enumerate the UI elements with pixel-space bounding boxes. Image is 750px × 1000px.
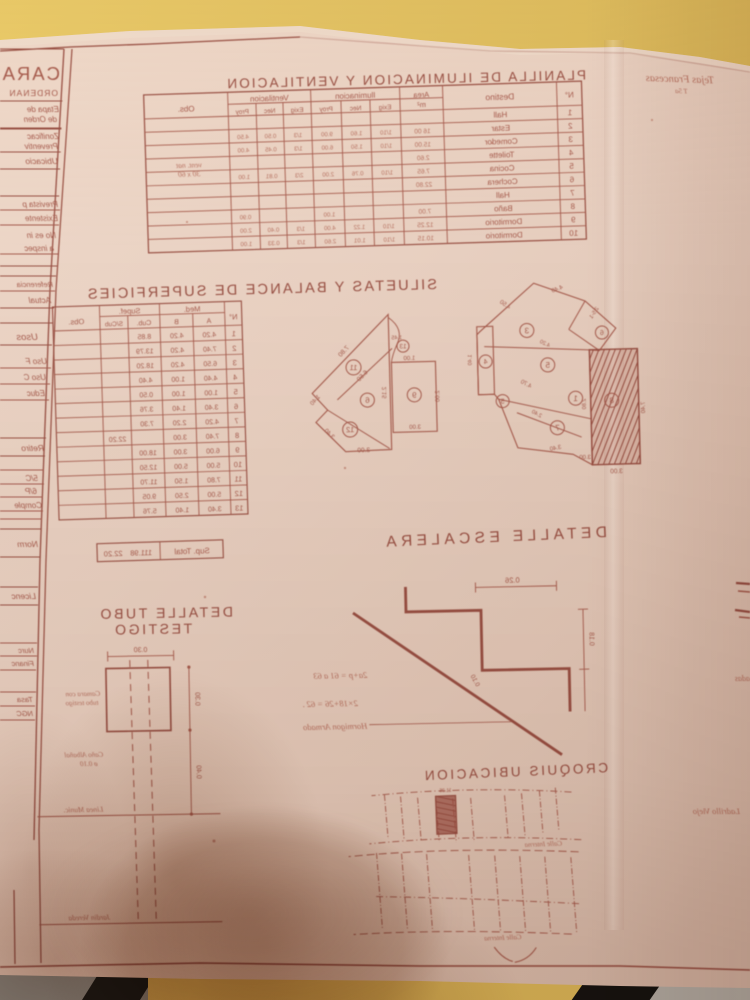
svg-text:2.00: 2.00 [239,228,252,234]
svg-text:2.50: 2.50 [175,493,189,500]
svg-text:Referencia: Referencia [17,280,53,289]
svg-text:1/3: 1/3 [296,240,305,246]
svg-text:3: 3 [233,358,237,367]
svg-text:9.05: 9.05 [142,494,156,501]
svg-text:0.10: 0.10 [468,673,480,688]
svg-text:4.20: 4.20 [539,339,551,349]
svg-text:11: 11 [234,474,242,483]
svg-text:Nec: Nec [349,105,362,112]
svg-text:7: 7 [234,416,238,425]
svg-text:2.15: 2.15 [382,387,388,399]
svg-text:Med.: Med. [184,304,201,314]
svg-text:4: 4 [568,148,573,157]
svg-text:3.40: 3.40 [549,445,562,453]
svg-text:2.00: 2.00 [322,172,335,178]
svg-text:6: 6 [365,396,370,405]
svg-text:1.40: 1.40 [172,405,186,412]
svg-text:1.00: 1.00 [323,212,336,218]
svg-text:4.70: 4.70 [519,379,533,390]
svg-text:0.26: 0.26 [505,576,520,585]
svg-text:3.00: 3.00 [610,468,623,475]
svg-text:Dormitorio: Dormitorio [485,230,523,240]
svg-text:Tejas Francesas: Tejas Francesas [646,73,715,86]
svg-text:Proy: Proy [319,106,333,113]
svg-text:B: B [174,319,179,326]
svg-text:6: 6 [600,330,604,337]
svg-text:7.30: 7.30 [140,421,154,428]
svg-text:1/10: 1/10 [379,130,392,136]
svg-text:DETALLE TUBO: DETALLE TUBO [98,604,233,622]
svg-text:1.00: 1.00 [240,242,253,248]
svg-text:2×18+26 = 62 .: 2×18+26 = 62 . [302,698,358,709]
svg-text:4.20: 4.20 [170,333,184,340]
svg-text:Exig: Exig [290,107,303,114]
svg-text:3: 3 [524,326,529,335]
svg-text:4.20: 4.20 [170,347,184,354]
svg-text:4: 4 [233,373,237,382]
svg-text:1/10: 1/10 [381,170,394,176]
svg-text:2.60: 2.60 [324,239,337,245]
svg-text:2.80: 2.80 [582,399,588,410]
svg-text:7.65: 7.65 [417,168,430,175]
svg-text:0.30: 0.30 [134,647,148,654]
svg-text:2.00: 2.00 [435,390,441,402]
svg-text:Actual: Actual [29,296,52,305]
svg-text:1.40: 1.40 [467,355,473,366]
svg-text:1.00: 1.00 [204,390,218,397]
svg-text:1/10: 1/10 [382,224,395,230]
svg-text:2.60: 2.60 [416,155,429,162]
svg-text:111.98: 111.98 [130,548,152,558]
svg-text:3.00: 3.00 [409,425,421,431]
svg-text:8: 8 [570,202,575,211]
svg-text:22.20: 22.20 [109,436,127,444]
svg-text:N°: N° [565,90,574,99]
svg-text:12.50: 12.50 [140,465,158,473]
svg-text:tubo testigo: tubo testigo [65,699,98,708]
svg-text:16 00: 16 00 [414,128,431,136]
svg-text:11.70: 11.70 [140,479,157,487]
svg-text:1/3: 1/3 [293,133,302,139]
svg-text:1.50: 1.50 [350,145,363,151]
svg-text:0.81: 0.81 [265,174,278,180]
svg-text:6: 6 [569,175,574,184]
svg-text:Educ: Educ [27,389,45,398]
svg-text:15.00: 15.00 [414,141,431,149]
svg-text:6.00: 6.00 [206,448,220,455]
svg-text:13: 13 [399,343,407,350]
svg-text:0.50: 0.50 [139,392,153,399]
svg-text:Sup. Total: Sup. Total [174,546,210,556]
svg-text:0.90: 0.90 [239,215,252,221]
svg-text:1.50: 1.50 [174,478,188,485]
svg-text:ORDENAN: ORDENAN [8,88,58,98]
svg-text:Dormitorio: Dormitorio [485,217,523,227]
svg-text:8.85: 8.85 [137,334,151,341]
svg-text:1/3: 1/3 [293,146,302,152]
svg-text:Uso F: Uso F [25,357,47,366]
svg-text:4.00: 4.00 [237,148,250,154]
svg-text:PLANILLA DE ILUMINACION Y: PLANILLA DE ILUMINACION Y VENTILACION [225,67,586,91]
svg-text:CARAC: CARAC [0,63,60,84]
svg-text:1: 1 [573,394,578,403]
svg-text:7.40: 7.40 [206,434,220,441]
svg-text:Preventiv: Preventiv [24,142,58,151]
svg-text:0.33: 0.33 [267,241,280,247]
svg-text:3.00: 3.00 [173,435,187,442]
svg-text:4.20: 4.20 [171,362,185,369]
svg-text:22.20: 22.20 [104,549,123,559]
svg-text:Comedor: Comedor [484,137,518,147]
svg-text:0.45: 0.45 [264,147,277,153]
svg-text:10: 10 [234,460,243,469]
svg-text:11: 11 [350,363,358,372]
svg-text:7.80: 7.80 [207,477,221,484]
svg-text:Comple: Comple [14,501,42,510]
svg-text:2: 2 [567,122,572,131]
svg-text:5.00: 5.00 [174,464,188,471]
svg-text:Area: Area [412,90,429,100]
svg-text:1.22: 1.22 [353,225,366,231]
svg-text:10.15: 10.15 [417,235,434,243]
svg-text:Hall: Hall [493,110,507,119]
svg-text:S/Cub: S/Cub [104,321,123,329]
svg-text:Retiro: Retiro [21,443,44,453]
svg-text:Cocina: Cocina [489,164,515,174]
svg-text:1: 1 [567,108,572,117]
svg-text:1/10: 1/10 [383,237,396,243]
svg-text:Iluminacion: Iluminacion [335,91,376,101]
svg-text:m²: m² [417,100,427,109]
svg-text:Ladrillo Viejo: Ladrillo Viejo [693,806,741,816]
svg-text:5: 5 [233,387,237,396]
svg-text:12.25: 12.25 [417,222,434,230]
svg-text:1.00: 1.00 [171,376,185,383]
svg-text:9.00: 9.00 [320,132,333,138]
svg-text:9: 9 [235,445,239,454]
svg-text:NGC: NGC [16,709,33,718]
svg-text:Ubicacio: Ubicacio [25,156,58,166]
svg-text:Financ: Financ [11,659,34,668]
svg-text:DETALLE ESCALERA: DETALLE ESCALERA [382,524,608,551]
svg-text:7: 7 [555,423,560,432]
svg-text:4.00: 4.00 [323,226,336,232]
svg-text:1.60: 1.60 [350,131,363,137]
svg-text:Cub.: Cub. [136,320,151,327]
svg-text:4.20: 4.20 [205,419,219,426]
svg-text:Hormigon Armado: Hormigon Armado [303,721,369,732]
svg-text:5.00: 5.00 [206,463,220,470]
svg-text:2a+p = 61 a 63: 2a+p = 61 a 63 [313,670,367,681]
svg-text:4.50: 4.50 [236,135,249,141]
svg-text:No es in: No es in [26,231,56,240]
svg-text:0.30: 0.30 [193,692,200,706]
svg-text:18.00: 18.00 [139,450,157,458]
svg-text:2.20: 2.20 [173,420,187,427]
svg-text:1.40: 1.40 [309,394,322,407]
svg-text:Exig: Exig [378,104,391,111]
svg-text:0.40: 0.40 [267,228,280,234]
svg-text:Toilette: Toilette [488,150,514,160]
svg-text:1.00: 1.00 [172,391,186,398]
svg-text:5: 5 [545,361,550,370]
svg-text:Existente: Existente [25,214,58,223]
svg-text:3.40: 3.40 [205,404,219,411]
svg-text:3.76: 3.76 [140,406,154,413]
svg-text:7.00: 7.00 [418,208,431,215]
svg-text:5: 5 [501,399,505,406]
svg-text:6.00: 6.00 [321,145,334,151]
svg-text:9: 9 [570,215,575,224]
svg-text:Estar: Estar [491,123,510,133]
svg-text:TESTIGO: TESTIGO [112,620,192,637]
svg-text:Nurc: Nurc [18,646,34,655]
svg-text:18.20: 18.20 [136,363,154,371]
svg-text:6: 6 [234,402,238,411]
svg-text:0.18: 0.18 [587,632,594,646]
svg-text:5/C: 5/C [25,474,38,483]
svg-text:Licenc: Licenc [11,591,36,601]
svg-text:T 5a: T 5a [674,87,687,95]
svg-text:3.40: 3.40 [322,428,335,441]
svg-text:7.80: 7.80 [337,345,351,359]
svg-text:A: A [206,318,211,325]
svg-text:1.40: 1.40 [175,507,189,514]
svg-text:8: 8 [235,431,239,440]
svg-text:Uso C: Uso C [24,373,46,382]
svg-text:10: 10 [569,229,579,238]
svg-text:4.40: 4.40 [204,375,218,382]
svg-text:adas: adas [735,674,750,683]
svg-text:Supef.: Supef. [119,306,141,316]
svg-text:5: 5 [569,162,574,171]
svg-text:6/P: 6/P [24,487,37,496]
svg-text:Hall: Hall [496,191,510,200]
svg-text:30 x 60: 30 x 60 [178,169,202,179]
svg-text:0.76: 0.76 [351,171,364,177]
svg-text:Etapa de: Etapa de [26,105,59,114]
svg-text:Calle Interna: Calle Interna [524,839,562,848]
svg-text:de Orden: de Orden [23,115,57,124]
svg-text:Zonificac: Zonificac [27,132,60,141]
svg-text:7.40: 7.40 [641,402,647,414]
svg-text:13: 13 [235,503,244,512]
svg-text:5.76: 5.76 [143,508,157,515]
svg-text:3: 3 [568,135,573,144]
svg-text:1.01: 1.01 [353,238,366,244]
svg-text:Destino: Destino [485,91,514,102]
svg-text:Obs.: Obs. [178,104,195,114]
svg-text:4: 4 [484,359,488,366]
svg-text:12: 12 [346,425,355,434]
svg-text:Obs.: Obs. [68,317,84,326]
svg-text:3.00: 3.00 [174,449,188,456]
svg-text:N°: N° [229,312,238,321]
svg-text:8: 8 [609,396,614,405]
svg-text:1/3: 1/3 [296,227,305,233]
svg-text:6.50: 6.50 [203,361,217,368]
svg-text:0.50: 0.50 [264,134,277,140]
svg-text:2/3: 2/3 [294,173,303,179]
svg-text:3.00: 3.00 [579,455,591,461]
svg-text:3.40: 3.40 [208,506,222,513]
svg-text:Cochera: Cochera [487,177,518,187]
svg-text:Ventilacion: Ventilacion [250,93,289,103]
svg-text:5.00: 5.00 [207,492,221,499]
svg-text:1/10: 1/10 [380,144,393,150]
svg-text:1: 1 [232,329,236,338]
svg-text:Camara con: Camara con [65,690,100,699]
svg-text:Tasa: Tasa [17,695,33,704]
svg-text:22.80: 22.80 [415,182,432,190]
svg-text:a inspec: a inspec [24,244,54,253]
svg-text:1.00: 1.00 [238,175,251,181]
svg-text:Proy: Proy [235,109,249,116]
svg-text:Prevista p: Prevista p [22,200,58,209]
svg-text:Nec: Nec [263,108,276,115]
svg-text:1.45: 1.45 [391,335,402,341]
svg-text:4.40: 4.40 [139,377,153,384]
svg-text:1.00: 1.00 [403,356,415,362]
svg-text:3.00: 3.00 [357,447,370,454]
svg-text:2: 2 [232,344,236,353]
svg-text:Usos: Usos [16,332,38,343]
svg-text:7: 7 [570,188,575,197]
svg-text:7.40: 7.40 [203,346,217,353]
svg-text:9: 9 [411,391,416,400]
svg-text:13.79: 13.79 [136,348,154,356]
svg-text:SILUETAS Y BALANCE DE SUPE: SILUETAS Y BALANCE DE SUPERFICIES [85,277,437,303]
svg-text:4.20: 4.20 [202,332,216,339]
svg-text:Norm: Norm [17,539,38,549]
svg-text:Baño: Baño [493,204,513,214]
svg-text:12: 12 [235,489,244,498]
